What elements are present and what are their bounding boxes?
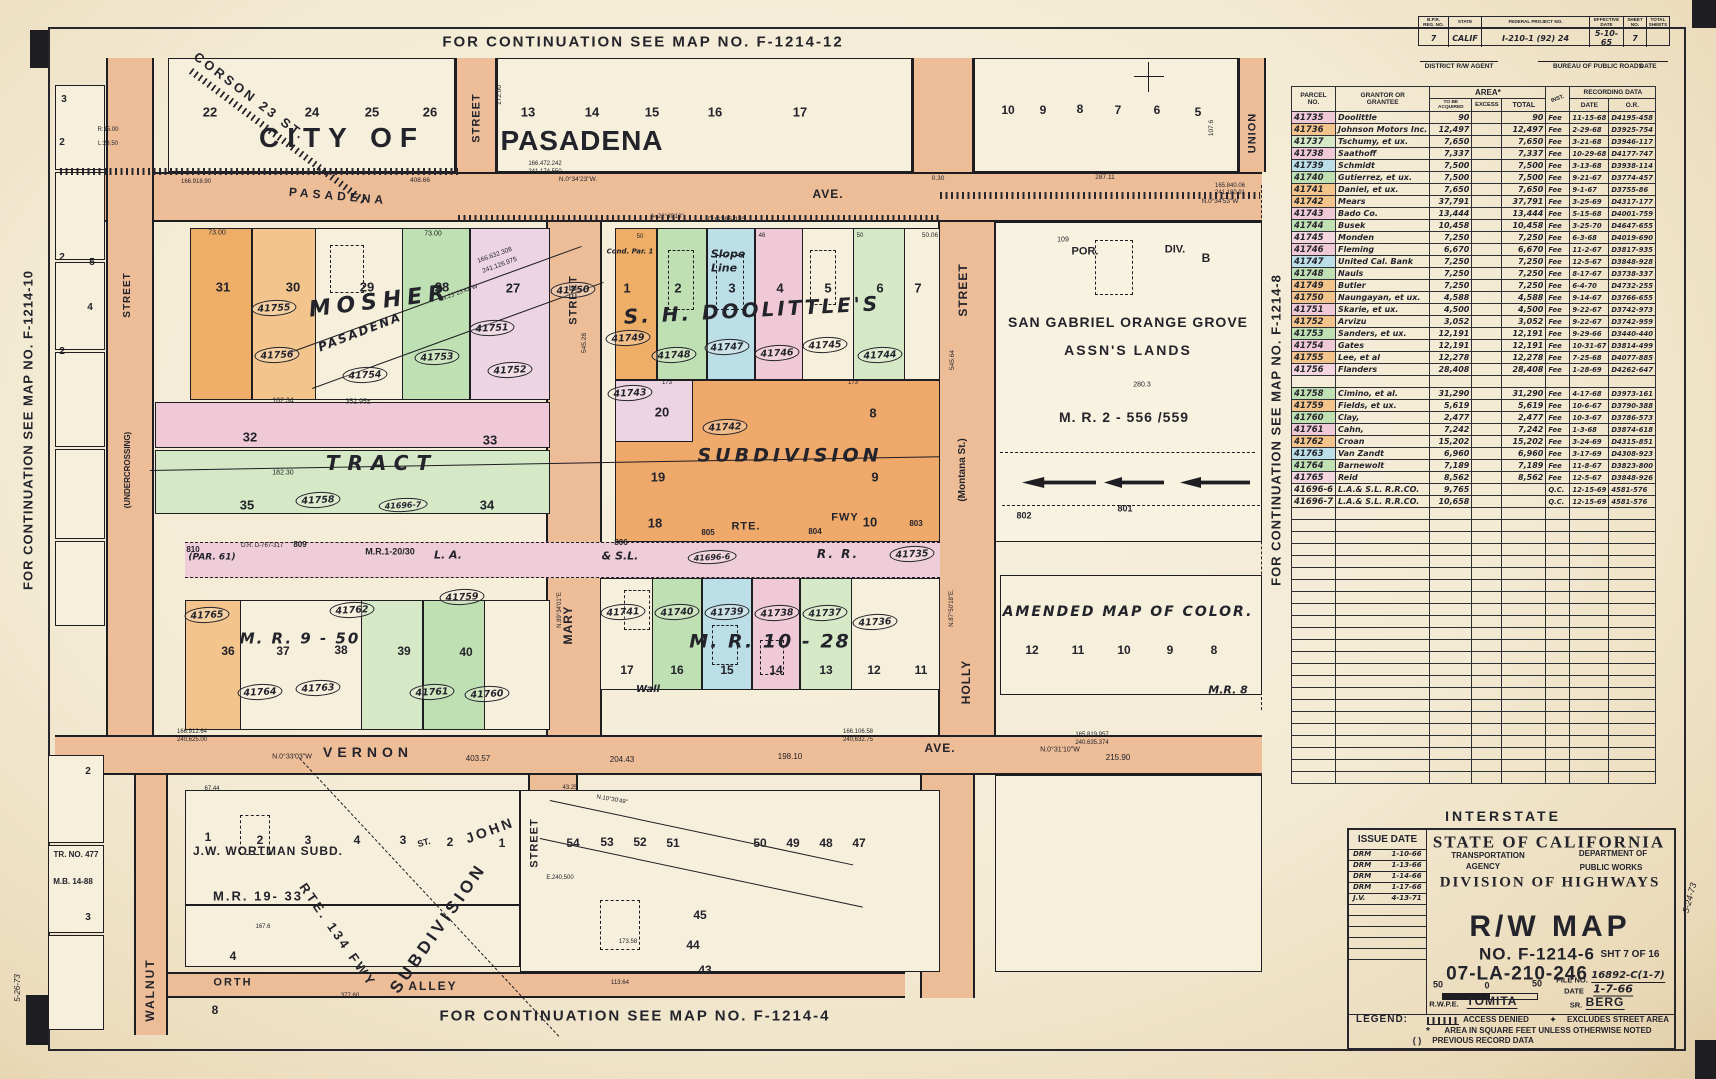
table-row: 41746Fleming6,670 6,670Fee11-2-67D3817-9… bbox=[1292, 244, 1656, 256]
table-cell: 15,202 bbox=[1430, 436, 1472, 448]
table-cell: 3-25-70 bbox=[1570, 220, 1609, 232]
table-cell bbox=[1336, 652, 1430, 664]
table-cell bbox=[1546, 580, 1570, 592]
table-cell: 41735 bbox=[1292, 112, 1336, 124]
table-cell bbox=[1609, 700, 1656, 712]
map-label: 22 bbox=[203, 106, 217, 119]
table-cell bbox=[1430, 700, 1472, 712]
map-label: 49 bbox=[786, 837, 799, 849]
lot-rect bbox=[1692, 0, 1716, 28]
table-cell bbox=[1502, 592, 1546, 604]
table-cell: 41749 bbox=[1292, 280, 1336, 292]
table-row-empty bbox=[1292, 544, 1656, 556]
table-cell bbox=[1502, 772, 1546, 784]
table-cell bbox=[1292, 532, 1336, 544]
map-label: 109 bbox=[1057, 237, 1069, 244]
table-cell: Johnson Motors Inc. bbox=[1336, 124, 1430, 136]
federal-box-value: CALIF bbox=[1449, 29, 1481, 47]
map-label: STREET bbox=[472, 93, 483, 142]
table-cell bbox=[1430, 724, 1472, 736]
table-row-empty bbox=[1292, 520, 1656, 532]
table-cell: 31,290 bbox=[1430, 388, 1472, 400]
table-cell bbox=[1430, 544, 1472, 556]
table-cell bbox=[1336, 616, 1430, 628]
table-cell bbox=[1546, 508, 1570, 520]
table-cell bbox=[1609, 376, 1656, 388]
map-label: TRACT bbox=[326, 453, 438, 473]
table-cell bbox=[1472, 220, 1502, 232]
table-cell bbox=[1472, 736, 1502, 748]
issue-date-cell bbox=[1349, 916, 1388, 926]
table-cell: Fee bbox=[1546, 292, 1570, 304]
table-cell: 7,337 bbox=[1502, 148, 1546, 160]
table-cell bbox=[1472, 388, 1502, 400]
table-cell: Q.C. bbox=[1546, 484, 1570, 496]
table-cell bbox=[1472, 628, 1502, 640]
lot-rect bbox=[55, 449, 105, 539]
table-cell bbox=[1609, 568, 1656, 580]
table-cell bbox=[1472, 640, 1502, 652]
table-row: 41754Gates12,191 12,191Fee10-31-67D3814-… bbox=[1292, 340, 1656, 352]
table-cell bbox=[1336, 676, 1430, 688]
table-cell bbox=[1609, 664, 1656, 676]
map-label: 26 bbox=[423, 106, 437, 119]
col-header-acquired: TO BE ACQUIRED bbox=[1430, 99, 1472, 112]
federal-box-column: EFFECTIVE DATE5-10-65 bbox=[1590, 17, 1624, 47]
map-label: FOR CONTINUATION SEE MAP NO. F-1214-4 bbox=[440, 1009, 831, 1024]
federal-box-column: STATECALIF bbox=[1449, 17, 1482, 47]
table-cell bbox=[1472, 532, 1502, 544]
table-cell bbox=[1570, 724, 1609, 736]
table-cell bbox=[1546, 604, 1570, 616]
map-label: 13 bbox=[521, 106, 535, 119]
federal-box-column: FEDERAL PROJECT NO.I-210-1 (92) 24 bbox=[1482, 17, 1590, 47]
table-cell: Naungayan, et ux. bbox=[1336, 292, 1430, 304]
table-cell bbox=[1472, 364, 1502, 376]
table-cell bbox=[1472, 688, 1502, 700]
table-cell: D4262-647 bbox=[1609, 364, 1656, 376]
table-cell bbox=[1502, 604, 1546, 616]
table-cell: Fee bbox=[1546, 220, 1570, 232]
table-cell bbox=[1570, 676, 1609, 688]
table-cell bbox=[1430, 628, 1472, 640]
table-cell bbox=[1570, 556, 1609, 568]
table-cell bbox=[1502, 484, 1546, 496]
table-cell bbox=[1430, 676, 1472, 688]
issue-date-cell: J.V. bbox=[1349, 894, 1388, 904]
table-cell: D4195-458 bbox=[1609, 112, 1656, 124]
issue-date-row: DRM1-13-66 bbox=[1349, 861, 1426, 872]
map-label: 51 bbox=[666, 837, 679, 849]
table-cell: Fee bbox=[1546, 112, 1570, 124]
legend-access-denied-symbol bbox=[1427, 1017, 1459, 1025]
table-cell bbox=[1292, 664, 1336, 676]
sheet-of: SHT 7 OF 16 bbox=[1601, 950, 1660, 960]
table-cell bbox=[1430, 556, 1472, 568]
table-cell: 41739 bbox=[1292, 160, 1336, 172]
table-cell: 41750 bbox=[1292, 292, 1336, 304]
map-label: 1 bbox=[205, 831, 212, 843]
table-cell bbox=[1430, 664, 1472, 676]
col-header-recording: RECORDING DATA bbox=[1570, 87, 1656, 99]
table-row: 41756Flanders28,408 28,408Fee1-28-69D426… bbox=[1292, 364, 1656, 376]
table-row: 41738Saathoff7,337 7,337Fee10-29-68D4177… bbox=[1292, 148, 1656, 160]
federal-box-header: FEDERAL PROJECT NO. bbox=[1482, 17, 1589, 29]
table-cell: 41696-6 bbox=[1292, 484, 1336, 496]
table-cell: 41737 bbox=[1292, 136, 1336, 148]
table-cell bbox=[1472, 376, 1502, 388]
table-row: 41752Arvizu3,052 3,052Fee9-22-67D3742-95… bbox=[1292, 316, 1656, 328]
table-cell bbox=[1292, 592, 1336, 604]
table-cell bbox=[1502, 544, 1546, 556]
table-cell: D4019-690 bbox=[1609, 232, 1656, 244]
map-label: 3 bbox=[305, 834, 312, 846]
issue-date-cell bbox=[1349, 927, 1388, 937]
map-label: 47 bbox=[852, 837, 865, 849]
table-cell: 3-17-69 bbox=[1570, 448, 1609, 460]
map-label: N.0°34'53"W bbox=[1202, 199, 1239, 206]
table-cell bbox=[1570, 616, 1609, 628]
map-label: 12 bbox=[1025, 644, 1038, 656]
table-cell: United Cal. Bank bbox=[1336, 256, 1430, 268]
table-row: 41751Skarie, et ux.4,500 4,500Fee9-22-67… bbox=[1292, 304, 1656, 316]
table-cell bbox=[1336, 628, 1430, 640]
table-cell: D4077-885 bbox=[1609, 352, 1656, 364]
map-label: FOR CONTINUATION SEE MAP NO. F-1214-8 bbox=[1270, 274, 1283, 586]
map-label: 16 bbox=[708, 106, 722, 119]
lot-rect bbox=[30, 30, 48, 68]
table-cell bbox=[1472, 316, 1502, 328]
table-cell: D4315-851 bbox=[1609, 436, 1656, 448]
map-label: WALNUT bbox=[144, 958, 156, 1021]
dept-line1: DEPARTMENT OF bbox=[1579, 850, 1647, 858]
table-cell bbox=[1502, 616, 1546, 628]
table-cell: 4,500 bbox=[1430, 304, 1472, 316]
map-label: 9 bbox=[1167, 644, 1174, 656]
lot-rect bbox=[995, 775, 1262, 972]
table-cell bbox=[1336, 532, 1430, 544]
table-cell bbox=[1609, 592, 1656, 604]
map-label: UNION bbox=[1248, 113, 1259, 153]
table-cell bbox=[1546, 592, 1570, 604]
table-cell: D3790-388 bbox=[1609, 400, 1656, 412]
table-cell: Cahn, bbox=[1336, 424, 1430, 436]
table-cell: 9,765 bbox=[1430, 484, 1472, 496]
table-cell: 7,650 bbox=[1502, 136, 1546, 148]
table-cell bbox=[1430, 652, 1472, 664]
table-row-empty bbox=[1292, 748, 1656, 760]
division-title: DIVISION OF HIGHWAYS bbox=[1440, 876, 1661, 891]
table-cell: 41748 bbox=[1292, 268, 1336, 280]
table-row: 41764Barnewolt7,189 7,189Fee11-8-67D3823… bbox=[1292, 460, 1656, 472]
table-cell: D3946-117 bbox=[1609, 136, 1656, 148]
table-cell bbox=[1570, 736, 1609, 748]
map-label: Wall bbox=[636, 685, 660, 695]
table-cell: Fee bbox=[1546, 244, 1570, 256]
table-cell: 10-29-68 bbox=[1570, 148, 1609, 160]
table-cell bbox=[1472, 304, 1502, 316]
table-row: 41696-7L.A.& S.L. R.R.CO.10,658 Q.C.12-1… bbox=[1292, 496, 1656, 508]
col-header-area: AREA* bbox=[1430, 87, 1546, 99]
map-label: Line bbox=[711, 263, 737, 274]
table-cell bbox=[1292, 640, 1336, 652]
table-cell: Arvizu bbox=[1336, 316, 1430, 328]
table-cell bbox=[1502, 700, 1546, 712]
table-cell: 12-15-69 bbox=[1570, 496, 1609, 508]
table-cell bbox=[1570, 640, 1609, 652]
map-label: RTE. bbox=[731, 522, 760, 533]
map-label: 54 bbox=[566, 837, 579, 849]
table-row: 41760Clay,2,477 2,477Fee10-3-67D3786-573 bbox=[1292, 412, 1656, 424]
map-label: 28 bbox=[435, 281, 449, 294]
table-cell bbox=[1570, 700, 1609, 712]
map-label: N.0°34'23"W. bbox=[559, 177, 597, 184]
map-label: 545.28 bbox=[582, 333, 589, 353]
table-cell bbox=[1570, 376, 1609, 388]
table-row: 41737Tschumy, et ux.7,650 7,650Fee3-21-6… bbox=[1292, 136, 1656, 148]
agency-line1: TRANSPORTATION bbox=[1451, 852, 1524, 860]
map-label: O.R. D-767-317 bbox=[241, 543, 283, 549]
table-cell bbox=[1292, 772, 1336, 784]
table-cell: 7,500 bbox=[1430, 160, 1472, 172]
table-cell bbox=[1546, 748, 1570, 760]
map-label: 25 bbox=[365, 106, 379, 119]
table-cell bbox=[1609, 736, 1656, 748]
table-cell bbox=[1472, 496, 1502, 508]
table-cell: Fee bbox=[1546, 304, 1570, 316]
table-cell bbox=[1472, 268, 1502, 280]
map-label: M.R. 8 bbox=[1208, 685, 1247, 696]
table-cell bbox=[1609, 604, 1656, 616]
table-cell bbox=[1472, 484, 1502, 496]
table-cell bbox=[1570, 532, 1609, 544]
table-row-empty bbox=[1292, 772, 1656, 784]
rwpe-label: R.W.P.E. bbox=[1429, 1000, 1458, 1008]
table-cell: Reid bbox=[1336, 472, 1430, 484]
table-cell: 6,960 bbox=[1430, 448, 1472, 460]
access-denied-hatch bbox=[458, 215, 940, 222]
table-row-empty bbox=[1292, 592, 1656, 604]
table-cell: 7,250 bbox=[1502, 232, 1546, 244]
table-cell: D3973-161 bbox=[1609, 388, 1656, 400]
table-cell: Tschumy, et ux. bbox=[1336, 136, 1430, 148]
issue-date-row bbox=[1349, 938, 1426, 949]
parcel-table: PARCEL NO. GRANTOR OR GRANTEE AREA* INST… bbox=[1291, 86, 1656, 784]
map-line bbox=[1148, 62, 1149, 92]
table-cell: 7,250 bbox=[1430, 280, 1472, 292]
table-cell: Fee bbox=[1546, 160, 1570, 172]
map-label: 377.60 bbox=[341, 993, 359, 999]
agency-line2: AGENCY bbox=[1466, 863, 1500, 871]
map-label: 1 bbox=[623, 282, 630, 295]
map-label: 5 bbox=[1195, 106, 1202, 118]
map-label: 5 bbox=[824, 282, 831, 295]
table-row: 41740Gutierrez, et ux.7,500 7,500Fee9-21… bbox=[1292, 172, 1656, 184]
table-cell: 9-1-67 bbox=[1570, 184, 1609, 196]
table-cell bbox=[1472, 724, 1502, 736]
map-label: 2 bbox=[447, 836, 454, 848]
table-cell bbox=[1546, 520, 1570, 532]
lot-rect bbox=[1695, 1040, 1716, 1079]
map-label: 9 bbox=[1040, 104, 1047, 116]
map-label: 1 bbox=[499, 837, 506, 849]
table-cell: Fee bbox=[1546, 172, 1570, 184]
legend-star-icon: ✦ bbox=[1549, 1016, 1557, 1025]
map-label: 15 bbox=[720, 664, 733, 676]
map-label: 167.6 bbox=[255, 924, 270, 930]
map-label: 3 bbox=[728, 282, 735, 295]
map-label: L:23.50 bbox=[98, 141, 118, 147]
table-row: 41765Reid8,562 8,562Fee12-5-67D3848-926 bbox=[1292, 472, 1656, 484]
map-label: 166.472.242 bbox=[528, 161, 561, 167]
map-label: R:15.00 bbox=[97, 127, 118, 133]
table-row-empty bbox=[1292, 616, 1656, 628]
issue-date-cell: DRM bbox=[1349, 883, 1388, 893]
table-cell bbox=[1336, 508, 1430, 520]
access-denied-hatch bbox=[60, 168, 458, 175]
table-cell bbox=[1472, 244, 1502, 256]
table-cell bbox=[1609, 616, 1656, 628]
map-label: 43 bbox=[698, 964, 711, 976]
table-cell bbox=[1546, 376, 1570, 388]
table-row: 41753Sanders, et ux.12,191 12,191Fee9-29… bbox=[1292, 328, 1656, 340]
table-cell bbox=[1430, 712, 1472, 724]
table-cell bbox=[1430, 592, 1472, 604]
table-cell: Fee bbox=[1546, 148, 1570, 160]
legend-paren-icon: ( ) bbox=[1413, 1037, 1422, 1046]
table-cell bbox=[1336, 544, 1430, 556]
map-label: FOR CONTINUATION SEE MAP NO. F-1214-10 bbox=[22, 270, 35, 590]
table-cell bbox=[1472, 568, 1502, 580]
table-cell: 41740 bbox=[1292, 172, 1336, 184]
federal-box-header: STATE bbox=[1449, 17, 1481, 29]
table-cell bbox=[1502, 712, 1546, 724]
table-cell bbox=[1336, 760, 1430, 772]
col-header-inst: INST. bbox=[1546, 87, 1570, 112]
table-cell bbox=[1472, 760, 1502, 772]
table-cell: 31,290 bbox=[1502, 388, 1546, 400]
map-label: 5 bbox=[89, 258, 95, 268]
table-cell bbox=[1292, 556, 1336, 568]
table-cell bbox=[1472, 400, 1502, 412]
sign-line-date: DATE bbox=[1639, 64, 1656, 71]
table-cell: Lee, et al bbox=[1336, 352, 1430, 364]
table-cell bbox=[1472, 124, 1502, 136]
table-cell bbox=[1609, 628, 1656, 640]
map-label: 801 bbox=[1117, 505, 1132, 514]
table-cell: 3-25-69 bbox=[1570, 196, 1609, 208]
lot-rect bbox=[48, 935, 104, 1030]
map-label: 113.64 bbox=[611, 980, 629, 986]
map-label: 73.00 bbox=[424, 231, 442, 238]
legend-area-note: AREA IN SQUARE FEET UNLESS OTHERWISE NOT… bbox=[1444, 1027, 1651, 1035]
map-label: 24 bbox=[305, 106, 319, 119]
table-cell: 3,052 bbox=[1430, 316, 1472, 328]
table-cell: 41759 bbox=[1292, 400, 1336, 412]
map-label: 37 bbox=[276, 645, 289, 657]
table-cell: D3755-86 bbox=[1609, 184, 1656, 196]
table-cell: 13,444 bbox=[1502, 208, 1546, 220]
map-label: FOR CONTINUATION SEE MAP NO. F-1214-12 bbox=[442, 35, 843, 50]
table-cell bbox=[1502, 688, 1546, 700]
table-cell: Clay, bbox=[1336, 412, 1430, 424]
table-cell: D4177-747 bbox=[1609, 148, 1656, 160]
table-cell bbox=[1292, 748, 1336, 760]
table-cell: 5-15-68 bbox=[1570, 208, 1609, 220]
map-label: 165.840.06 bbox=[1215, 183, 1245, 189]
table-cell: 7,250 bbox=[1502, 280, 1546, 292]
table-cell: 41745 bbox=[1292, 232, 1336, 244]
lot-rect bbox=[1000, 575, 1262, 695]
map-label: M.B. 14-88 bbox=[53, 878, 93, 886]
table-row: 41755Lee, et al12,278 12,278Fee7-25-68D4… bbox=[1292, 352, 1656, 364]
table-cell bbox=[1502, 664, 1546, 676]
table-cell: 9-21-67 bbox=[1570, 172, 1609, 184]
table-cell: Fee bbox=[1546, 388, 1570, 400]
table-cell bbox=[1472, 436, 1502, 448]
table-cell bbox=[1292, 712, 1336, 724]
table-cell: L.A.& S.L. R.R.CO. bbox=[1336, 496, 1430, 508]
table-cell bbox=[1502, 748, 1546, 760]
map-label: D:G385-145 bbox=[708, 217, 746, 224]
map-label: 182.34 bbox=[272, 398, 293, 405]
table-cell bbox=[1430, 376, 1472, 388]
map-label: B bbox=[1202, 252, 1211, 264]
table-cell bbox=[1546, 640, 1570, 652]
lot-rect bbox=[55, 262, 105, 350]
table-row-empty bbox=[1292, 532, 1656, 544]
table-cell: 41746 bbox=[1292, 244, 1336, 256]
issue-date-cell bbox=[1388, 938, 1427, 948]
lot-rect bbox=[361, 600, 423, 730]
file-no-value: 16892-C(1-7) bbox=[1591, 971, 1665, 983]
table-cell bbox=[1336, 772, 1430, 784]
map-label: 36 bbox=[221, 645, 234, 657]
map-label: 4 bbox=[776, 282, 783, 295]
table-cell: Fee bbox=[1546, 448, 1570, 460]
table-cell: Fee bbox=[1546, 472, 1570, 484]
map-label: 11 bbox=[915, 664, 928, 676]
table-cell: 41753 bbox=[1292, 328, 1336, 340]
legend-asterisk-icon: * bbox=[1426, 1027, 1430, 1037]
issue-date-cell bbox=[1349, 938, 1388, 948]
map-label: 204.43 bbox=[610, 756, 634, 764]
map-label: M.R.1-20/30 bbox=[365, 548, 415, 557]
issue-date-cell bbox=[1349, 905, 1388, 915]
table-row-empty bbox=[1292, 760, 1656, 772]
table-cell bbox=[1430, 688, 1472, 700]
table-cell: 41741 bbox=[1292, 184, 1336, 196]
table-cell bbox=[1570, 580, 1609, 592]
issue-date-cell: 1-14-66 bbox=[1388, 872, 1427, 882]
map-label: 8 bbox=[869, 407, 876, 420]
map-label: 4 bbox=[230, 950, 237, 962]
table-cell: D3848-926 bbox=[1609, 472, 1656, 484]
table-cell: 10-31-67 bbox=[1570, 340, 1609, 352]
table-cell: Nauls bbox=[1336, 268, 1430, 280]
map-label: N.0°33'03"W bbox=[272, 754, 312, 761]
scale-right: 50 bbox=[1532, 980, 1542, 989]
issue-date-row: DRM1-10-66 bbox=[1349, 850, 1426, 861]
federal-box-column: TOTAL SHEETS bbox=[1647, 17, 1669, 47]
table-cell: Fee bbox=[1546, 136, 1570, 148]
table-cell bbox=[1472, 700, 1502, 712]
issue-date-cell: DRM bbox=[1349, 861, 1388, 871]
table-cell bbox=[1570, 628, 1609, 640]
table-cell: L.A.& S.L. R.R.CO. bbox=[1336, 484, 1430, 496]
table-cell bbox=[1472, 652, 1502, 664]
issue-date-cell bbox=[1388, 927, 1427, 937]
